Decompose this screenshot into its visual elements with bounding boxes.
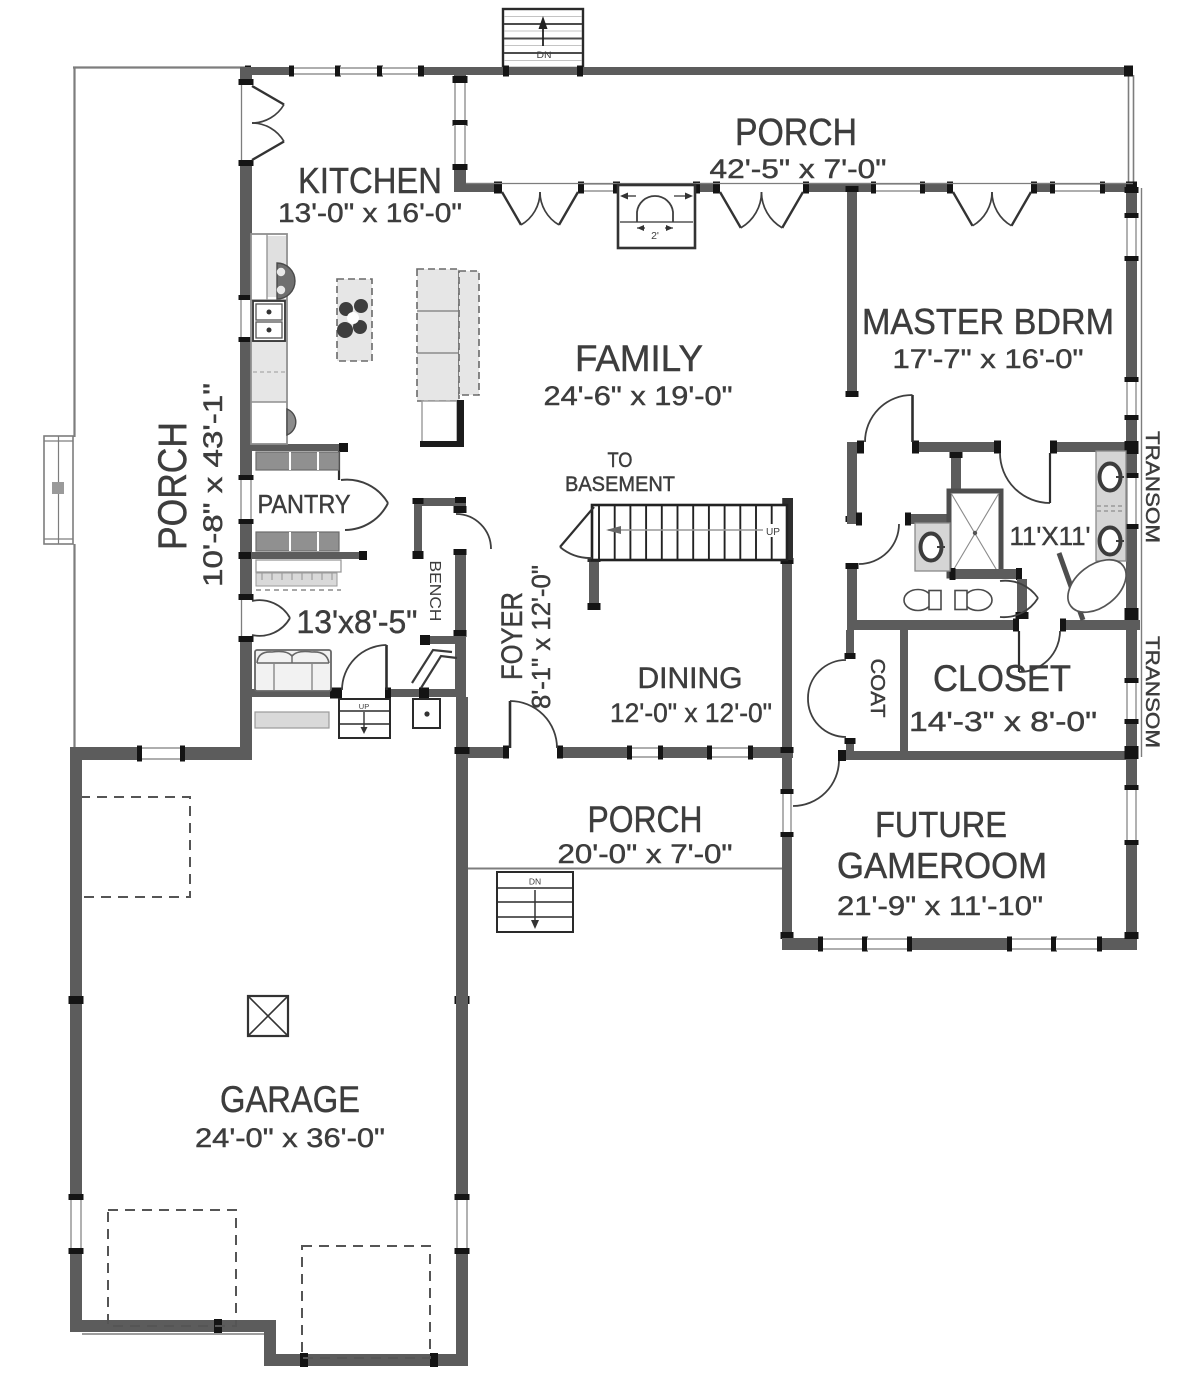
svg-text:24'-0" x 36'-0": 24'-0" x 36'-0" [195, 1123, 385, 1153]
svg-text:UP: UP [766, 527, 780, 538]
svg-text:COAT: COAT [866, 659, 888, 718]
svg-text:DN: DN [537, 50, 552, 60]
svg-text:24'-6" x 19'-0": 24'-6" x 19'-0" [544, 381, 733, 411]
svg-text:DN: DN [529, 877, 541, 887]
svg-text:GAMEROOM: GAMEROOM [837, 845, 1047, 886]
svg-text:TRANSOM: TRANSOM [1141, 431, 1162, 543]
svg-text:FUTURE: FUTURE [875, 804, 1007, 845]
svg-text:CLOSET: CLOSET [933, 658, 1071, 699]
svg-text:FAMILY: FAMILY [575, 338, 703, 379]
svg-text:10'-8" x 43'-1": 10'-8" x 43'-1" [198, 383, 228, 587]
svg-text:DINING: DINING [638, 662, 743, 695]
svg-text:11'X11': 11'X11' [1010, 521, 1091, 551]
svg-text:PORCH: PORCH [735, 112, 857, 154]
svg-text:FOYER: FOYER [496, 592, 529, 680]
svg-text:PORCH: PORCH [588, 799, 703, 840]
svg-text:KITCHEN: KITCHEN [298, 160, 442, 201]
svg-text:12'-0" x 12'-0": 12'-0" x 12'-0" [610, 698, 772, 728]
svg-text:MASTER BDRM: MASTER BDRM [862, 301, 1114, 342]
svg-text:BENCH: BENCH [426, 561, 443, 622]
svg-text:PORCH: PORCH [151, 422, 195, 550]
svg-text:20'-0" x 7'-0": 20'-0" x 7'-0" [558, 839, 733, 869]
svg-text:21'-9" x 11'-10": 21'-9" x 11'-10" [837, 891, 1043, 921]
svg-text:UP: UP [359, 702, 369, 711]
svg-text:TO: TO [608, 449, 633, 472]
svg-text:13'x8'-5": 13'x8'-5" [297, 604, 418, 640]
svg-text:17'-7" x 16'-0": 17'-7" x 16'-0" [893, 344, 1084, 374]
svg-text:14'-3" x 8'-0": 14'-3" x 8'-0" [909, 706, 1097, 737]
svg-text:GARAGE: GARAGE [220, 1079, 360, 1120]
svg-text:13'-0" x 16'-0": 13'-0" x 16'-0" [278, 198, 462, 228]
svg-text:2': 2' [651, 230, 659, 242]
svg-text:BASEMENT: BASEMENT [565, 473, 675, 496]
svg-text:8'-1" x 12'-0": 8'-1" x 12'-0" [526, 565, 556, 709]
svg-text:42'-5" x 7'-0": 42'-5" x 7'-0" [710, 154, 887, 184]
svg-text:TRANSOM: TRANSOM [1141, 636, 1162, 748]
svg-text:PANTRY: PANTRY [258, 489, 351, 519]
